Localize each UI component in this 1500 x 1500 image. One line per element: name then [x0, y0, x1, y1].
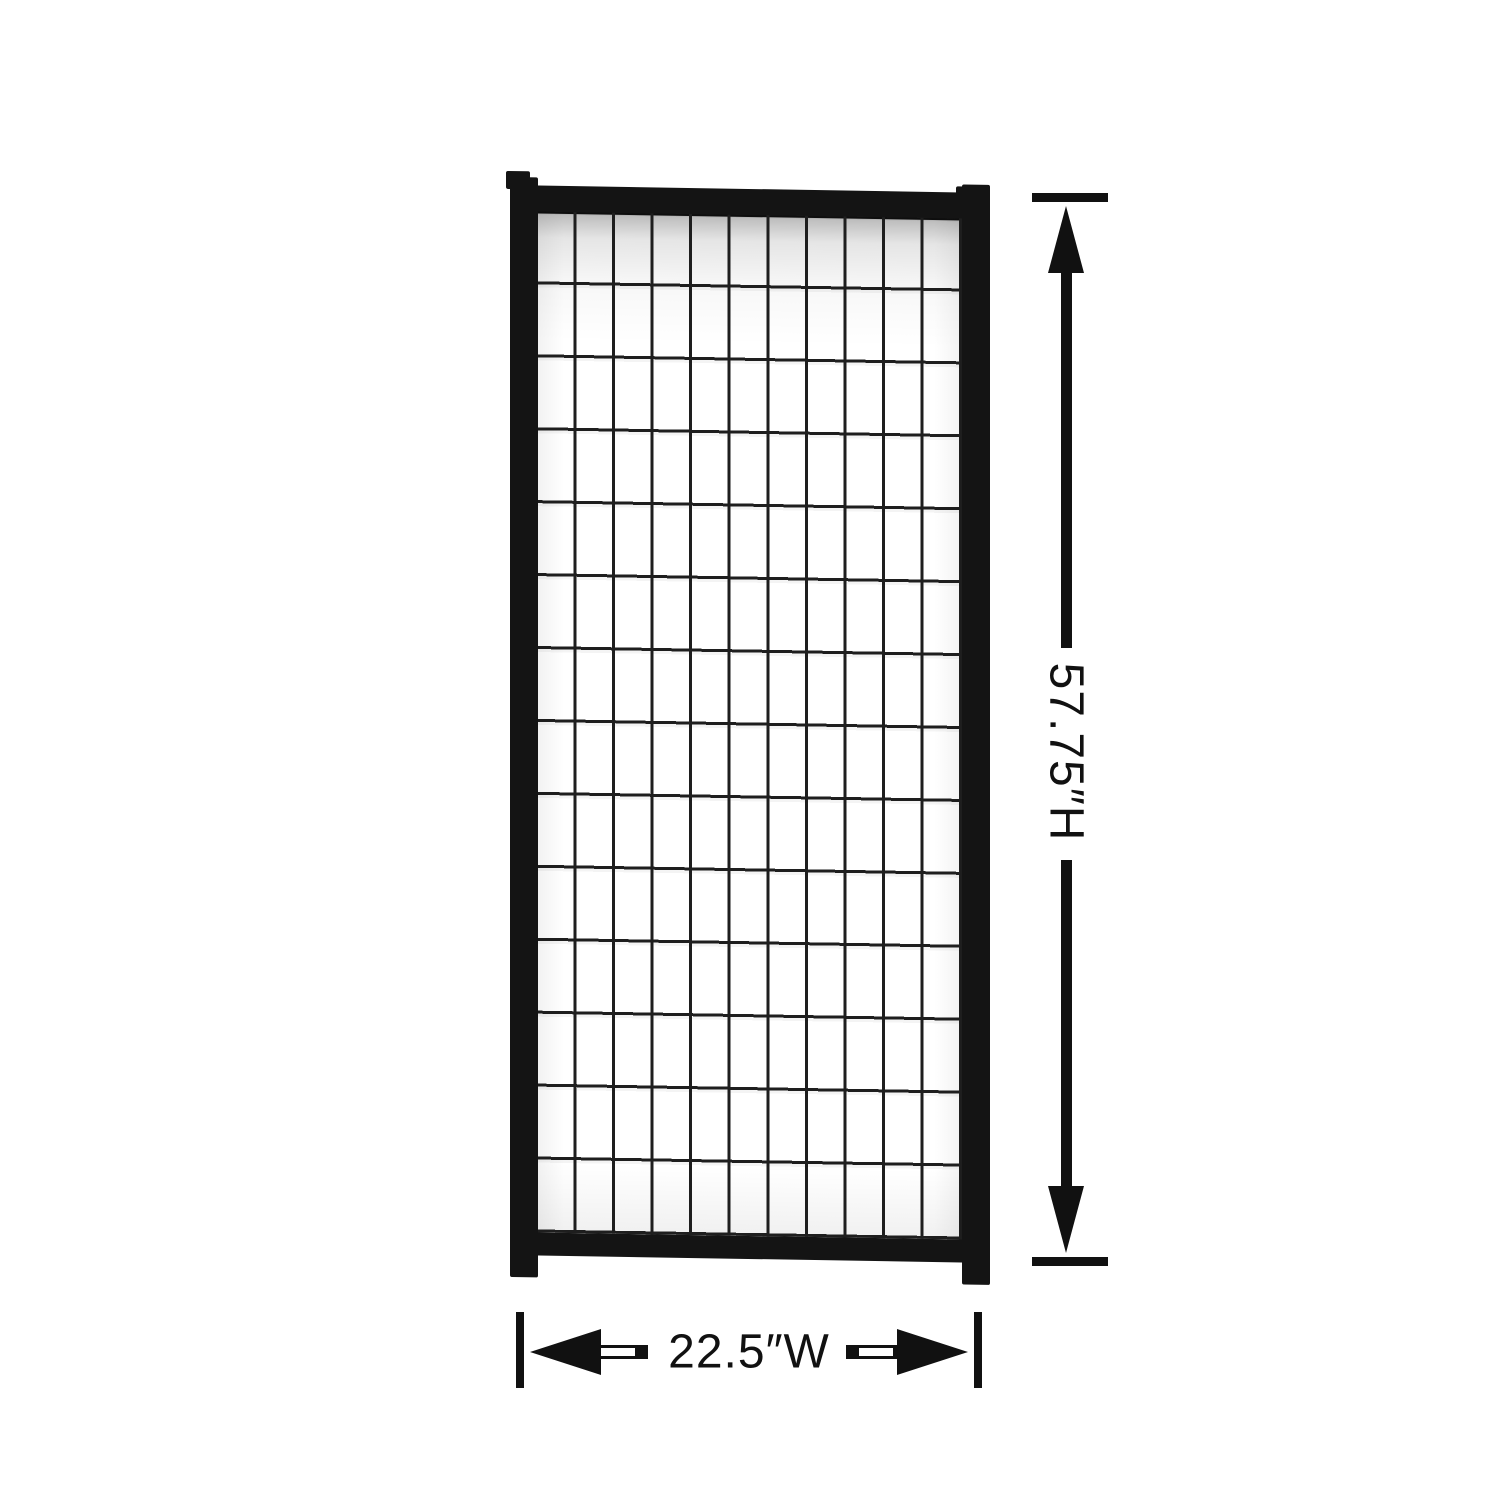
up-arrow-icon [1048, 206, 1084, 273]
height-dimension: 57.75″H [1032, 193, 1108, 1266]
right-arrow-notch [859, 1348, 893, 1356]
width-right-tick [974, 1312, 982, 1388]
width-dimension: 22.5″W [516, 1312, 982, 1388]
height-bottom-tick [1032, 1257, 1108, 1266]
height-top-tick [1032, 193, 1108, 202]
width-label: 22.5″W [668, 1326, 830, 1379]
height-shaft-lower [1061, 860, 1072, 1190]
width-left-tick [516, 1312, 524, 1388]
right-arrow-icon [897, 1329, 968, 1375]
dimension-annotations: 57.75″H 22.5″W [0, 0, 1500, 1500]
height-shaft-upper [1061, 266, 1072, 648]
left-arrow-icon [530, 1329, 601, 1375]
height-label: 57.75″H [1040, 663, 1093, 842]
product-figure: 57.75″H 22.5″W [0, 0, 1500, 1500]
left-arrow-notch [601, 1348, 635, 1356]
down-arrow-icon [1048, 1186, 1084, 1253]
